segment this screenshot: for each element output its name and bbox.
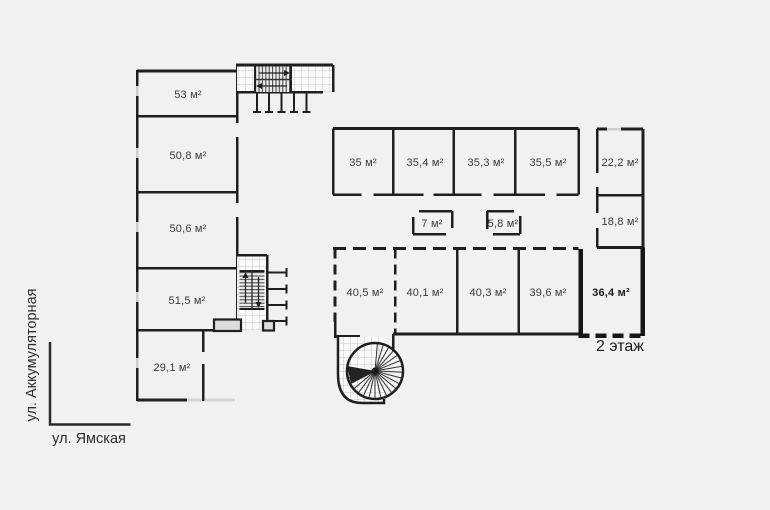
room-39-6: 39,6 м² bbox=[529, 287, 566, 299]
room-35: 35 м² bbox=[349, 157, 377, 169]
wc-partitions bbox=[253, 92, 311, 112]
top-stairwell bbox=[236, 65, 333, 112]
room-40-3: 40,3 м² bbox=[469, 287, 506, 299]
room-35-3: 35,3 м² bbox=[467, 157, 504, 169]
room-7: 7 м² bbox=[421, 218, 442, 230]
room-area-label: 50,8 м² bbox=[169, 150, 206, 162]
bottom-row-walls bbox=[333, 249, 579, 352]
room-5-8: 5,8 м² bbox=[488, 218, 519, 230]
room-area-label: 5,8 м² bbox=[488, 218, 519, 230]
room-area-label: 50,6 м² bbox=[169, 223, 206, 235]
room-area-label: 40,5 м² bbox=[346, 287, 383, 299]
room-18-8: 18,8 м² bbox=[601, 216, 638, 228]
room-36-4-highlighted: 36,4 м² bbox=[592, 287, 630, 299]
shaft-box bbox=[263, 321, 274, 331]
room-area-label: 22,2 м² bbox=[601, 157, 638, 169]
room-53: 53 м² bbox=[174, 89, 202, 101]
room-area-label: 40,3 м² bbox=[469, 287, 506, 299]
room-50-8: 50,8 м² bbox=[169, 150, 206, 162]
street-label-vertical: ул. Аккумуляторная bbox=[24, 289, 40, 422]
elevator-landing-box bbox=[214, 320, 241, 332]
room-area-label: 35 м² bbox=[349, 157, 377, 169]
staircase-symbol-top bbox=[255, 67, 291, 93]
room-29-1: 29,1 м² bbox=[153, 362, 190, 374]
room-35-5: 35,5 м² bbox=[529, 157, 566, 169]
room-area-label: 36,4 м² bbox=[592, 287, 630, 299]
room-area-label: 39,6 м² bbox=[529, 287, 566, 299]
room-51-5: 51,5 м² bbox=[168, 295, 205, 307]
street-label-horizontal: ул. Ямская bbox=[52, 431, 126, 447]
room-50-6: 50,6 м² bbox=[169, 223, 206, 235]
street-corner-line bbox=[50, 342, 131, 425]
right-column-walls bbox=[597, 129, 643, 248]
room-area-label: 53 м² bbox=[174, 89, 202, 101]
room-40-1: 40,1 м² bbox=[406, 287, 443, 299]
floor-number-label: 2 этаж bbox=[596, 338, 644, 355]
room-35-4: 35,4 м² bbox=[406, 157, 443, 169]
room-22-2: 22,2 м² bbox=[601, 157, 638, 169]
room-area-label: 51,5 м² bbox=[168, 295, 205, 307]
room-area-label: 35,5 м² bbox=[529, 157, 566, 169]
room-area-label: 40,1 м² bbox=[406, 287, 443, 299]
staircase-symbol-center bbox=[240, 271, 265, 309]
room-area-label: 35,3 м² bbox=[467, 157, 504, 169]
room-area-label: 35,4 м² bbox=[406, 157, 443, 169]
room-40-5: 40,5 м² bbox=[346, 287, 383, 299]
floor-plan: 53 м² 50,8 м² 50,6 м² 51,5 м² 29,1 м² 35… bbox=[0, 0, 770, 510]
center-stairwell bbox=[214, 255, 287, 331]
room-area-label: 29,1 м² bbox=[153, 362, 190, 374]
room-area-label: 7 м² bbox=[421, 218, 442, 230]
floor-plan-page: 53 м² 50,8 м² 50,6 м² 51,5 м² 29,1 м² 35… bbox=[0, 0, 770, 510]
street-axis: ул. Аккумуляторная ул. Ямская bbox=[24, 289, 131, 447]
room-area-label: 18,8 м² bbox=[601, 216, 638, 228]
